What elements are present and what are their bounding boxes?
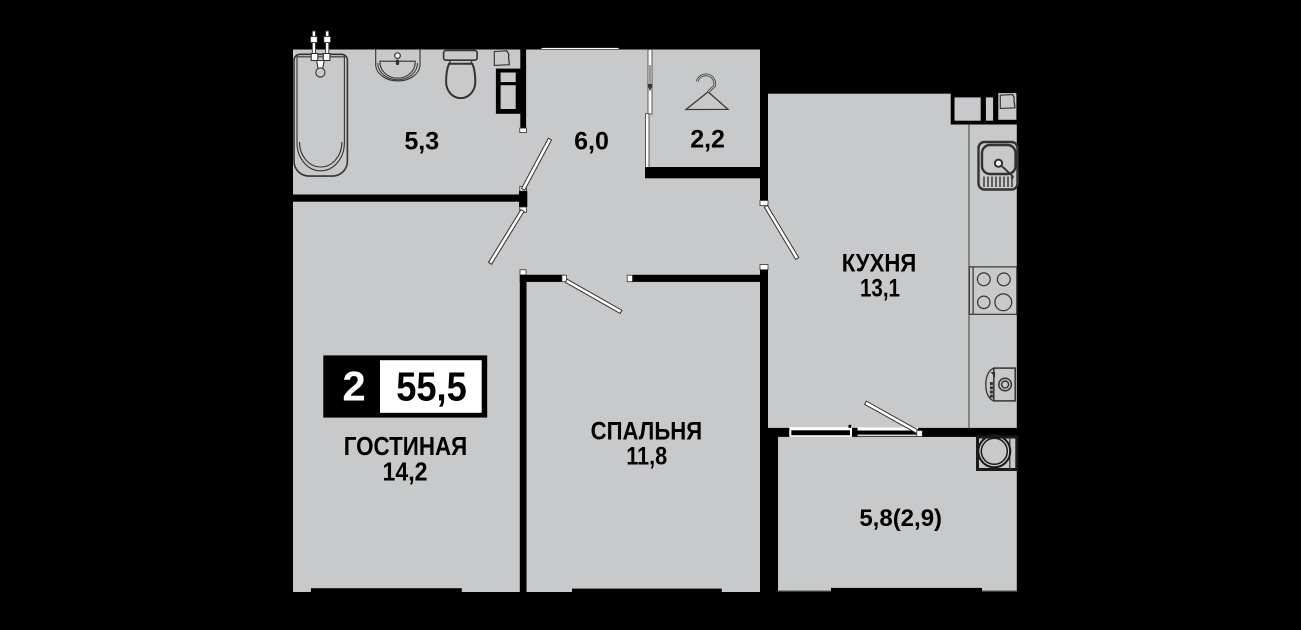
svg-text:14,2: 14,2	[383, 457, 428, 487]
svg-text:СПАЛЬНЯ: СПАЛЬНЯ	[591, 418, 703, 446]
svg-text:55,5: 55,5	[396, 364, 467, 410]
svg-text:11,8: 11,8	[626, 443, 667, 471]
svg-text:КУХНЯ: КУХНЯ	[842, 249, 917, 277]
svg-text:6,0: 6,0	[574, 128, 609, 156]
svg-text:2: 2	[342, 363, 365, 410]
svg-text:5,3: 5,3	[404, 128, 439, 156]
svg-text:2,2: 2,2	[690, 126, 725, 154]
svg-text:13,1: 13,1	[860, 275, 900, 303]
svg-text:5,8(2,9): 5,8(2,9)	[859, 505, 942, 532]
